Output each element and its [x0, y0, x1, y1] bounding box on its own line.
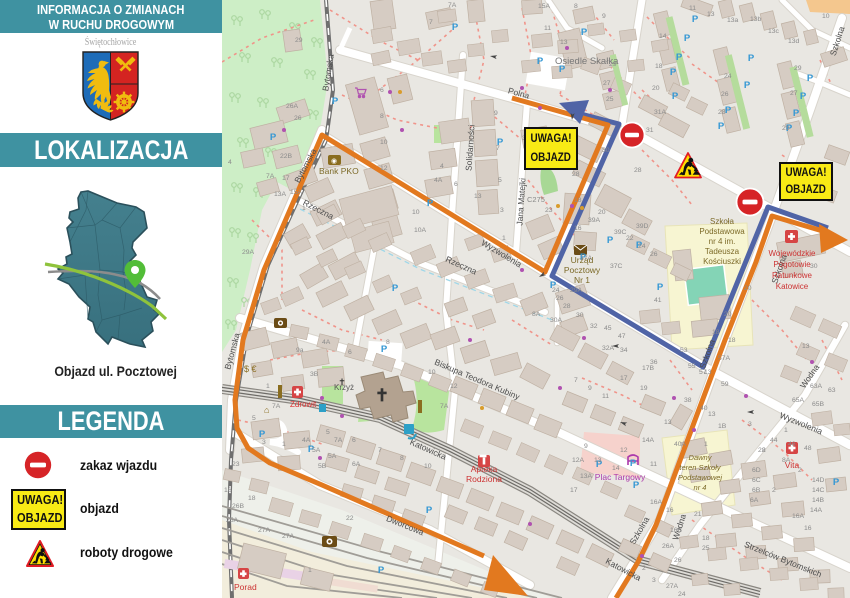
svg-text:53: 53	[680, 347, 688, 354]
svg-text:6A: 6A	[750, 497, 759, 504]
svg-text:14D: 14D	[812, 477, 825, 484]
svg-text:23: 23	[545, 207, 553, 214]
svg-text:1: 1	[308, 567, 312, 574]
svg-text:7: 7	[378, 447, 382, 454]
svg-text:8: 8	[386, 339, 390, 346]
svg-text:7: 7	[574, 377, 578, 384]
svg-text:27: 27	[603, 80, 611, 87]
svg-text:19: 19	[640, 385, 648, 392]
svg-text:17B: 17B	[642, 365, 655, 372]
svg-text:P: P	[800, 91, 807, 102]
svg-text:Rodziona: Rodziona	[466, 474, 502, 484]
svg-text:P: P	[270, 132, 277, 143]
svg-text:P: P	[692, 14, 699, 25]
svg-text:63: 63	[828, 387, 836, 394]
svg-text:31A: 31A	[654, 109, 667, 116]
svg-text:P: P	[833, 477, 840, 488]
svg-text:7A: 7A	[448, 2, 457, 9]
svg-text:4A: 4A	[322, 339, 331, 346]
svg-text:2: 2	[642, 565, 646, 572]
svg-text:Dawny: Dawny	[689, 453, 713, 462]
svg-text:26: 26	[721, 91, 729, 98]
svg-text:18: 18	[248, 495, 256, 502]
svg-text:P: P	[670, 67, 677, 78]
svg-text:Zdrowit: Zdrowit	[290, 400, 317, 409]
svg-text:1B: 1B	[718, 423, 727, 430]
svg-text:P: P	[684, 33, 691, 44]
svg-text:45: 45	[604, 325, 612, 332]
svg-text:13: 13	[704, 369, 712, 376]
svg-text:28: 28	[718, 109, 726, 116]
svg-text:1: 1	[784, 427, 788, 434]
svg-text:P: P	[807, 73, 814, 84]
svg-text:12A: 12A	[572, 457, 585, 464]
svg-text:6D: 6D	[752, 467, 761, 474]
svg-text:24: 24	[552, 287, 560, 294]
svg-text:13: 13	[664, 419, 672, 426]
svg-text:6C: 6C	[752, 477, 761, 484]
svg-text:P: P	[427, 198, 434, 209]
svg-text:21: 21	[694, 511, 702, 518]
svg-text:63A: 63A	[810, 383, 823, 390]
svg-text:34: 34	[620, 347, 628, 354]
svg-text:8: 8	[380, 113, 384, 120]
svg-text:5: 5	[498, 177, 502, 184]
svg-text:P: P	[718, 121, 725, 132]
svg-text:P: P	[378, 565, 385, 576]
svg-text:23: 23	[782, 125, 790, 132]
svg-text:P: P	[392, 283, 399, 294]
svg-text:Tadeusza: Tadeusza	[705, 247, 740, 256]
svg-text:8A: 8A	[532, 311, 541, 318]
svg-text:16B: 16B	[670, 527, 683, 534]
svg-text:12: 12	[450, 383, 458, 390]
svg-text:13: 13	[708, 411, 716, 418]
svg-text:✝: ✝	[338, 377, 346, 387]
svg-text:27A: 27A	[282, 533, 295, 540]
svg-text:3: 3	[652, 577, 656, 584]
svg-text:29: 29	[609, 61, 617, 68]
svg-text:39C: 39C	[614, 229, 627, 236]
svg-text:1: 1	[704, 441, 708, 448]
svg-text:13A: 13A	[274, 191, 287, 198]
svg-text:18: 18	[574, 197, 582, 204]
svg-text:1: 1	[282, 441, 286, 448]
svg-text:27A: 27A	[258, 527, 271, 534]
svg-text:14A: 14A	[642, 437, 655, 444]
svg-text:7A: 7A	[440, 403, 449, 410]
svg-text:13d: 13d	[788, 38, 800, 45]
svg-text:P: P	[672, 91, 679, 102]
svg-text:P: P	[630, 458, 637, 469]
svg-text:Podstawowej: Podstawowej	[678, 473, 723, 482]
svg-text:4: 4	[228, 159, 232, 166]
svg-text:22B: 22B	[280, 153, 293, 160]
svg-text:1: 1	[266, 383, 270, 390]
svg-text:$ €: $ €	[244, 364, 257, 374]
svg-text:P: P	[676, 52, 683, 63]
svg-text:30A: 30A	[550, 317, 563, 324]
svg-text:13b: 13b	[750, 16, 762, 23]
svg-text:20: 20	[724, 311, 732, 318]
svg-text:23: 23	[232, 461, 240, 468]
svg-text:1: 1	[302, 205, 306, 212]
svg-text:15A: 15A	[538, 3, 551, 10]
svg-text:P: P	[657, 282, 664, 293]
svg-text:25: 25	[702, 545, 710, 552]
svg-text:13: 13	[560, 39, 568, 46]
svg-text:15A: 15A	[290, 189, 303, 196]
svg-text:Katowice: Katowice	[776, 282, 809, 291]
svg-text:47: 47	[618, 333, 626, 340]
svg-text:25: 25	[606, 96, 614, 103]
svg-text:14C: 14C	[812, 487, 825, 494]
svg-text:3: 3	[262, 439, 266, 446]
svg-text:22: 22	[626, 235, 634, 242]
svg-text:29: 29	[295, 37, 303, 44]
svg-text:4A: 4A	[434, 177, 443, 184]
svg-text:29: 29	[794, 65, 802, 72]
svg-text:9: 9	[602, 13, 606, 20]
svg-text:P: P	[537, 56, 544, 67]
svg-text:24: 24	[724, 73, 732, 80]
svg-text:28: 28	[572, 171, 580, 178]
svg-text:13c: 13c	[768, 28, 780, 35]
svg-text:16: 16	[224, 487, 232, 494]
svg-text:Szkoła: Szkoła	[710, 217, 735, 226]
svg-text:Pogotowie: Pogotowie	[773, 260, 811, 269]
svg-text:P: P	[452, 22, 459, 33]
svg-text:Bank PKO: Bank PKO	[319, 166, 359, 176]
svg-text:22: 22	[346, 515, 354, 522]
svg-text:7A: 7A	[266, 173, 275, 180]
svg-text:3: 3	[500, 207, 504, 214]
svg-text:2: 2	[798, 467, 802, 474]
svg-text:16: 16	[804, 525, 812, 532]
svg-text:10: 10	[822, 13, 830, 20]
svg-text:20: 20	[598, 209, 606, 216]
svg-text:Kościuszki: Kościuszki	[703, 257, 741, 266]
svg-text:7A: 7A	[272, 403, 281, 410]
svg-text:Wojewódzkie: Wojewódzkie	[769, 249, 817, 258]
svg-text:6B: 6B	[752, 487, 761, 494]
svg-text:18: 18	[702, 535, 710, 542]
svg-text:32: 32	[590, 323, 598, 330]
svg-text:30: 30	[602, 147, 610, 154]
svg-text:nr 4 im.: nr 4 im.	[709, 237, 736, 246]
svg-text:Porad: Porad	[234, 582, 257, 592]
svg-text:25A: 25A	[226, 517, 239, 524]
svg-text:13A: 13A	[580, 473, 593, 480]
svg-text:28: 28	[563, 303, 571, 310]
svg-text:P: P	[426, 505, 433, 516]
svg-text:P: P	[607, 235, 614, 246]
svg-text:16A: 16A	[650, 499, 663, 506]
svg-text:29A: 29A	[242, 249, 255, 256]
svg-text:P: P	[748, 53, 755, 64]
svg-text:10A: 10A	[414, 227, 427, 234]
svg-text:59: 59	[721, 381, 729, 388]
svg-text:10: 10	[380, 139, 388, 146]
svg-text:P: P	[725, 105, 732, 116]
svg-text:◉: ◉	[331, 158, 337, 165]
svg-text:30: 30	[810, 263, 818, 270]
svg-text:18: 18	[712, 329, 720, 336]
svg-text:26: 26	[674, 557, 682, 564]
svg-text:26: 26	[294, 115, 302, 122]
svg-text:10: 10	[412, 209, 420, 216]
svg-text:P: P	[633, 480, 640, 491]
svg-text:30: 30	[576, 312, 584, 319]
svg-text:Pocztowy: Pocztowy	[564, 265, 601, 275]
svg-text:11: 11	[650, 461, 657, 468]
svg-text:⌂: ⌂	[264, 405, 269, 415]
svg-text:11: 11	[602, 393, 609, 400]
svg-text:13: 13	[707, 11, 715, 18]
svg-text:20: 20	[652, 85, 660, 92]
svg-text:2: 2	[762, 447, 766, 454]
svg-text:12: 12	[380, 165, 388, 172]
svg-text:4A: 4A	[302, 437, 311, 444]
svg-text:11: 11	[689, 5, 696, 12]
svg-text:6A: 6A	[352, 461, 361, 468]
svg-text:46: 46	[788, 441, 796, 448]
svg-text:Ratunkowe: Ratunkowe	[772, 271, 813, 280]
svg-text:8A: 8A	[782, 457, 791, 464]
svg-text:7: 7	[429, 19, 433, 26]
svg-text:55: 55	[688, 363, 696, 370]
svg-text:6: 6	[352, 437, 356, 444]
svg-text:11: 11	[544, 25, 551, 32]
svg-text:26A: 26A	[286, 103, 299, 110]
svg-text:18: 18	[728, 337, 736, 344]
svg-text:P: P	[793, 108, 800, 119]
svg-text:12: 12	[620, 447, 628, 454]
svg-text:38: 38	[684, 397, 692, 404]
svg-text:6: 6	[454, 181, 458, 188]
svg-text:26: 26	[650, 251, 658, 258]
svg-text:3: 3	[748, 421, 752, 428]
svg-text:14: 14	[612, 465, 620, 472]
svg-text:16: 16	[666, 507, 674, 514]
svg-text:26B: 26B	[232, 503, 245, 510]
svg-text:40A: 40A	[674, 441, 687, 448]
svg-text:2: 2	[772, 487, 776, 494]
svg-text:44: 44	[770, 437, 778, 444]
svg-text:5: 5	[252, 415, 256, 422]
svg-text:18: 18	[655, 63, 663, 70]
svg-text:27A: 27A	[666, 583, 679, 590]
svg-text:P: P	[744, 80, 751, 91]
svg-text:37C: 37C	[610, 263, 623, 270]
svg-text:5A: 5A	[312, 447, 321, 454]
svg-text:Podstawowa: Podstawowa	[699, 227, 745, 236]
svg-text:9: 9	[588, 385, 592, 392]
svg-text:57A: 57A	[718, 355, 731, 362]
svg-text:P: P	[332, 96, 339, 107]
svg-text:26: 26	[556, 295, 564, 302]
svg-text:8: 8	[574, 3, 578, 10]
svg-text:13: 13	[802, 343, 810, 350]
svg-text:3B: 3B	[310, 371, 319, 378]
svg-text:13a: 13a	[727, 17, 739, 24]
svg-text:5B: 5B	[318, 463, 327, 470]
svg-text:5: 5	[326, 429, 330, 436]
svg-text:16A: 16A	[792, 513, 805, 520]
svg-text:7: 7	[496, 145, 500, 152]
svg-text:6: 6	[380, 87, 384, 94]
svg-text:9: 9	[584, 443, 588, 450]
svg-text:24: 24	[638, 243, 646, 250]
svg-text:5A: 5A	[328, 453, 337, 460]
svg-text:14A: 14A	[810, 507, 823, 514]
svg-text:17: 17	[282, 175, 290, 182]
svg-text:✝: ✝	[375, 386, 389, 405]
svg-text:31: 31	[646, 127, 654, 134]
svg-text:24: 24	[678, 591, 686, 598]
svg-text:Nr 1: Nr 1	[574, 275, 590, 285]
svg-text:teren Szkoły: teren Szkoły	[679, 463, 722, 472]
svg-text:14B: 14B	[812, 497, 825, 504]
svg-text:13: 13	[474, 193, 482, 200]
svg-text:4: 4	[440, 163, 444, 170]
svg-text:C275: C275	[527, 195, 545, 204]
svg-text:10: 10	[424, 463, 432, 470]
svg-text:26A: 26A	[662, 543, 675, 550]
svg-text:10: 10	[428, 369, 436, 376]
svg-text:16: 16	[574, 225, 582, 232]
svg-text:13: 13	[594, 457, 602, 464]
svg-text:37A: 37A	[580, 255, 593, 262]
svg-text:40: 40	[700, 405, 708, 412]
svg-text:9a: 9a	[296, 347, 304, 354]
svg-text:17: 17	[620, 375, 628, 382]
svg-text:28: 28	[634, 167, 642, 174]
svg-text:41: 41	[654, 297, 662, 304]
svg-text:20: 20	[744, 285, 752, 292]
svg-text:nr 4: nr 4	[694, 483, 707, 492]
svg-text:48: 48	[804, 445, 812, 452]
svg-text:1: 1	[502, 235, 506, 242]
svg-text:14: 14	[659, 33, 667, 40]
svg-text:9: 9	[494, 110, 498, 117]
svg-text:P: P	[581, 27, 588, 38]
svg-text:8: 8	[400, 455, 404, 462]
svg-text:65B: 65B	[812, 401, 825, 408]
svg-text:39A: 39A	[588, 217, 601, 224]
svg-text:6: 6	[348, 349, 352, 356]
svg-text:17: 17	[570, 487, 578, 494]
svg-text:27: 27	[790, 90, 798, 97]
svg-text:P: P	[559, 64, 566, 75]
svg-text:39D: 39D	[636, 223, 649, 230]
svg-text:7A: 7A	[334, 437, 343, 444]
svg-text:65A: 65A	[792, 397, 805, 404]
svg-text:29A: 29A	[570, 287, 583, 294]
